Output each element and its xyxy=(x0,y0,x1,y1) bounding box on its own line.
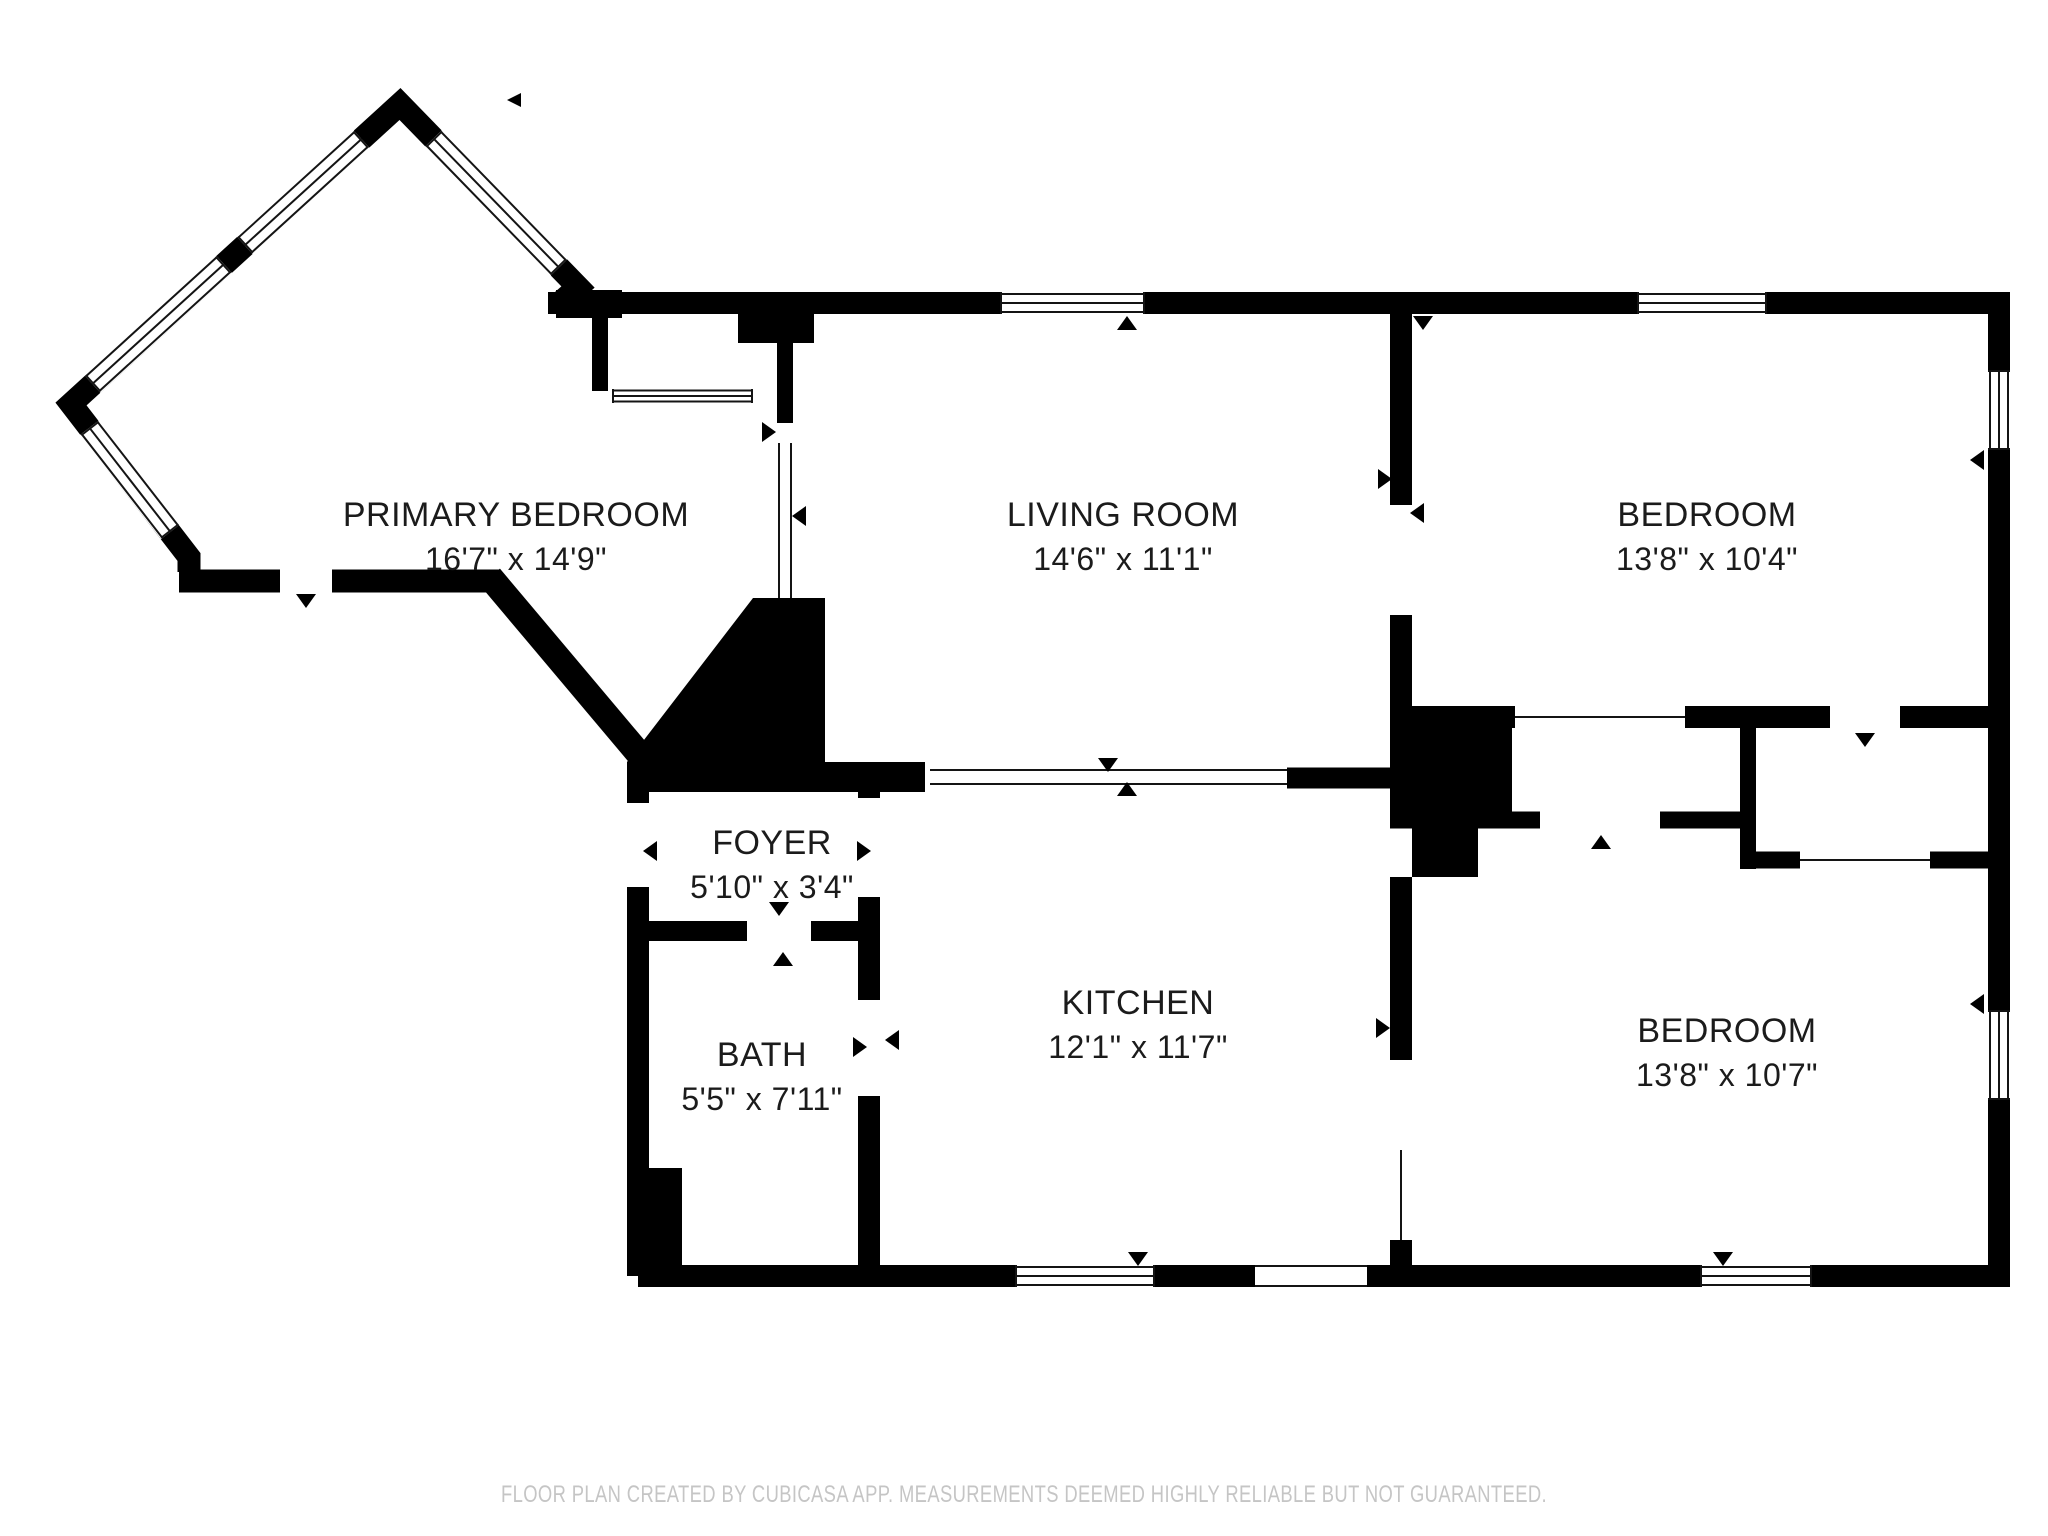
door-arrow xyxy=(1128,1252,1148,1266)
door-arrow xyxy=(773,952,793,966)
room-label-bath: BATH 5'5" x 7'11" xyxy=(681,1036,842,1117)
floor-plan-page: PRIMARY BEDROOM 16'7" x 14'9" LIVING ROO… xyxy=(0,0,2048,1536)
door-arrow xyxy=(792,506,806,526)
room-name: BATH xyxy=(717,1036,807,1074)
room-dimensions: 12'1" x 11'7" xyxy=(1048,1029,1228,1065)
door-arrow xyxy=(296,594,316,608)
room-label-kitchen: KITCHEN 12'1" x 11'7" xyxy=(1048,984,1228,1065)
room-name: BEDROOM xyxy=(1617,496,1796,534)
door-arrow xyxy=(1855,733,1875,747)
room-name: LIVING ROOM xyxy=(1007,496,1239,534)
wall-wedge xyxy=(627,598,925,792)
room-dimensions: 5'10" x 3'4" xyxy=(690,869,854,905)
room-name: KITCHEN xyxy=(1062,984,1215,1022)
door-arrow xyxy=(762,422,776,442)
room-dimensions: 13'8" x 10'4" xyxy=(1616,541,1798,577)
door-arrow xyxy=(1591,835,1611,849)
exterior-walls xyxy=(71,104,2010,1287)
room-label-living-room: LIVING ROOM 14'6" x 11'1" xyxy=(1007,496,1239,577)
door-arrow xyxy=(1713,1252,1733,1266)
room-labels: PRIMARY BEDROOM 16'7" x 14'9" LIVING ROO… xyxy=(343,496,1818,1117)
room-name: BEDROOM xyxy=(1637,1012,1816,1050)
room-label-bedroom-top: BEDROOM 13'8" x 10'4" xyxy=(1616,496,1798,577)
room-name: PRIMARY BEDROOM xyxy=(343,496,689,534)
room-label-foyer: FOYER 5'10" x 3'4" xyxy=(690,824,854,905)
door-arrow xyxy=(1117,316,1137,330)
door-arrow xyxy=(507,93,521,107)
door-arrow xyxy=(885,1030,899,1050)
room-name: FOYER xyxy=(712,824,832,862)
room-dimensions: 13'8" x 10'7" xyxy=(1636,1057,1818,1093)
floor-plan: PRIMARY BEDROOM 16'7" x 14'9" LIVING ROO… xyxy=(0,0,2048,1536)
room-label-primary-bedroom: PRIMARY BEDROOM 16'7" x 14'9" xyxy=(343,496,689,577)
door-arrow xyxy=(1413,316,1433,330)
door-arrow xyxy=(1376,1018,1390,1038)
door-arrow xyxy=(1970,994,1984,1014)
room-label-bedroom-bottom: BEDROOM 13'8" x 10'7" xyxy=(1636,1012,1818,1093)
room-dimensions: 5'5" x 7'11" xyxy=(681,1081,842,1117)
footer-disclaimer: FLOOR PLAN CREATED BY CUBICASA APP. MEAS… xyxy=(501,1481,1547,1508)
room-dimensions: 14'6" x 11'1" xyxy=(1033,541,1213,577)
door-arrow xyxy=(1970,450,1984,470)
room-dimensions: 16'7" x 14'9" xyxy=(425,541,607,577)
door-arrow xyxy=(1378,469,1392,489)
